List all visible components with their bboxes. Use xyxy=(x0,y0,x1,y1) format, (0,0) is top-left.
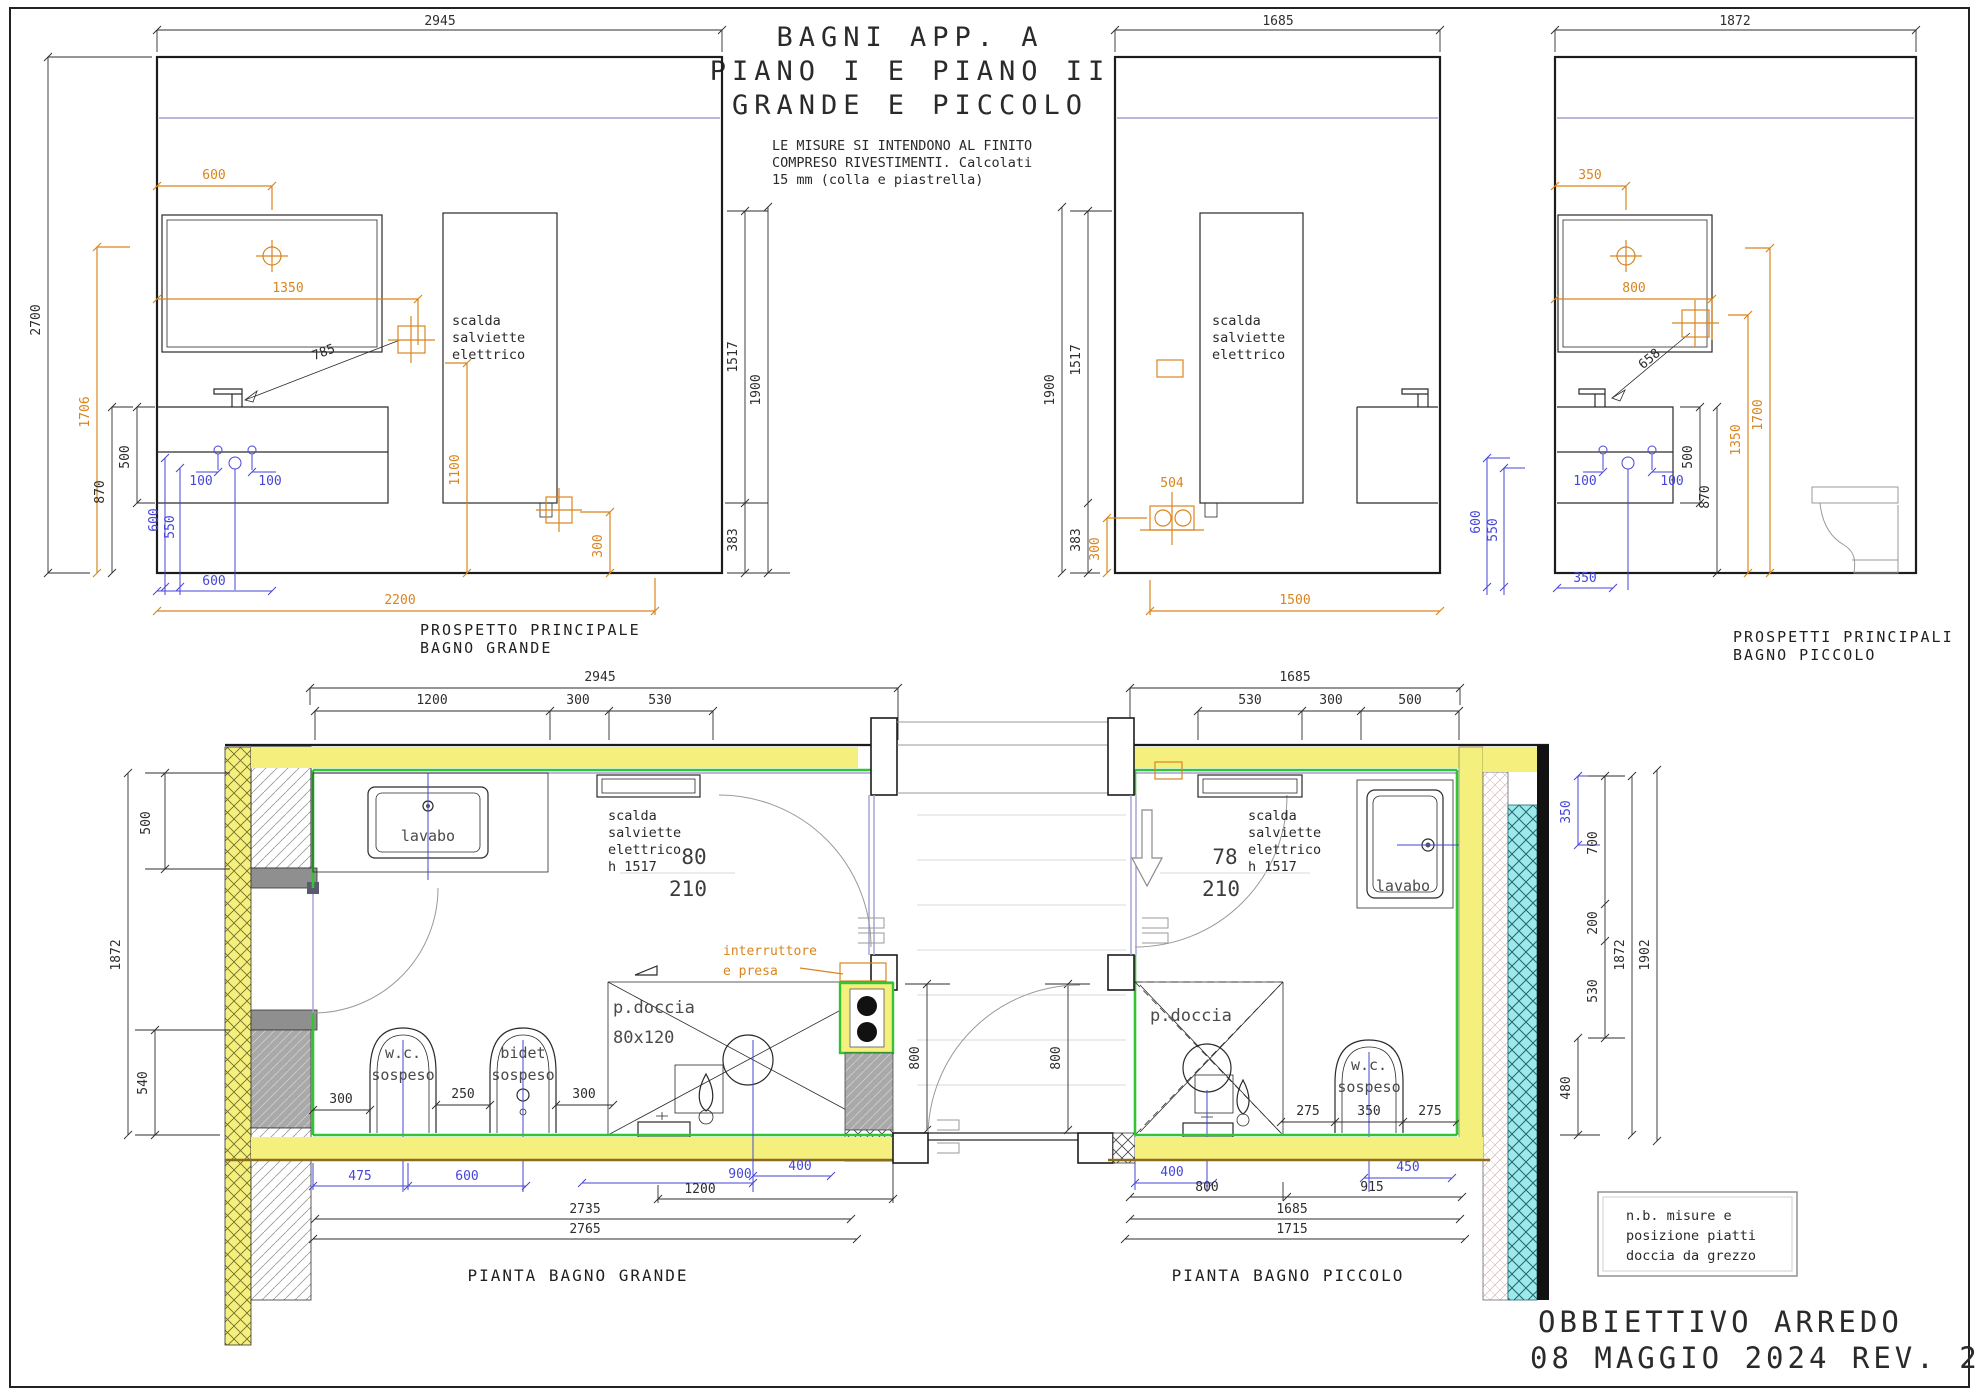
dim-800: 800 xyxy=(1622,281,1645,296)
faucet xyxy=(1579,389,1605,407)
mirror-light-point xyxy=(1610,240,1642,272)
double-socket-icon xyxy=(1140,492,1204,545)
dim-530: 530 xyxy=(1586,979,1601,1002)
wall-block xyxy=(845,1053,893,1130)
wall-outline xyxy=(157,57,722,573)
dim-300: 300 xyxy=(1319,693,1342,708)
wall-finish-band xyxy=(251,1137,893,1159)
dim-480: 480 xyxy=(1559,1076,1574,1099)
dim-1200: 1200 xyxy=(416,693,447,708)
towel-label-1: scalda xyxy=(1212,313,1261,329)
nb-line3: doccia da grezzo xyxy=(1626,1248,1756,1264)
wc-label-2: sospeso xyxy=(371,1066,434,1084)
dim-350: 350 xyxy=(1578,168,1601,183)
sheet-title-line2: PIANO I E PIANO II xyxy=(710,56,1111,87)
drawing-sheet: BAGNI APP. A PIANO I E PIANO II GRANDE E… xyxy=(0,0,1980,1394)
towel-label-1: scalda xyxy=(1248,808,1297,824)
elevation-piccolo-scalda: 1685 scalda salviette elettrico 504 300 … xyxy=(1043,14,1525,615)
dim-1900: 1900 xyxy=(1043,374,1058,405)
finish-note-line1: LE MISURE SI INTENDONO AL FINITO xyxy=(772,138,1032,154)
hallway: 800 800 xyxy=(893,722,1135,1163)
dim-275b: 275 xyxy=(1418,1104,1441,1119)
wc-label-2: sospeso xyxy=(1337,1078,1400,1096)
dim-height: 2700 xyxy=(29,304,44,335)
dim-600: 600 xyxy=(455,1169,478,1184)
towel-label-2: salviette xyxy=(452,330,525,346)
dim-1700: 1700 xyxy=(1751,399,1766,430)
dim-600v: 600 xyxy=(147,508,162,531)
external-wall-right xyxy=(1459,745,1549,1300)
electric-niche xyxy=(840,983,893,1053)
dim-500: 500 xyxy=(1681,445,1696,468)
door-height-label: 210 xyxy=(1202,877,1240,901)
dim-800: 800 xyxy=(1195,1180,1218,1195)
sheet-title-line3: GRANDE E PICCOLO xyxy=(732,90,1088,121)
dim-1517: 1517 xyxy=(1069,344,1084,375)
towel-label-2: salviette xyxy=(608,825,681,841)
bidet-label-1: bidet xyxy=(500,1044,545,1062)
dim-250: 250 xyxy=(451,1087,474,1102)
door-jamb xyxy=(1078,1133,1113,1163)
dim-550v: 550 xyxy=(163,515,178,538)
socket-icon xyxy=(536,488,582,532)
dim-width: 1685 xyxy=(1262,14,1293,29)
dim-550: 550 xyxy=(1486,518,1501,541)
nb-line1: n.b. misure e xyxy=(1626,1208,1732,1224)
dim-800a: 800 xyxy=(908,1046,923,1069)
door-jamb xyxy=(893,1133,928,1163)
towel-label-2: salviette xyxy=(1212,330,1285,346)
socket-icon xyxy=(388,316,435,363)
dim-1706: 1706 xyxy=(78,396,93,427)
dim-300: 300 xyxy=(1088,537,1103,560)
dim-900: 900 xyxy=(728,1167,751,1182)
elevation-piccolo-lavabo: 1872 350 800 658 100 100 350 500 870 135… xyxy=(1551,14,1954,664)
dim-1685: 1685 xyxy=(1279,670,1310,685)
dim-800b: 800 xyxy=(1049,1046,1064,1069)
dim-1500: 1500 xyxy=(1279,593,1310,608)
dim-500: 500 xyxy=(1398,693,1421,708)
dim-350: 350 xyxy=(1357,1104,1380,1119)
towel-warmer xyxy=(1198,775,1302,797)
dim-width: 1872 xyxy=(1719,14,1750,29)
sheet-title: BAGNI APP. A PIANO I E PIANO II GRANDE E… xyxy=(710,22,1111,188)
dim-870: 870 xyxy=(1698,485,1713,508)
note-box: n.b. misure e posizione piatti doccia da… xyxy=(1598,1192,1797,1276)
cad-drawing: BAGNI APP. A PIANO I E PIANO II GRANDE E… xyxy=(0,0,1980,1394)
dim-658: 658 xyxy=(1636,346,1664,373)
dim-100b: 100 xyxy=(258,474,281,489)
wc-label-1: w.c. xyxy=(1351,1056,1387,1074)
dim-600: 600 xyxy=(1469,510,1484,533)
dim-600b: 600 xyxy=(202,574,225,589)
dim-100a: 100 xyxy=(189,474,212,489)
dim-1517: 1517 xyxy=(726,341,741,372)
switch-icon xyxy=(1157,360,1183,377)
door-swing-arc xyxy=(313,888,438,1013)
pianta-bagno-grande: 2945 1200 300 530 lavabo scalda sal xyxy=(109,670,920,1345)
dim-mirror-600: 600 xyxy=(202,168,225,183)
titleblock-line2: 08 MAGGIO 2024 REV. 2 xyxy=(1530,1341,1980,1375)
towel-label-2: salviette xyxy=(1248,825,1321,841)
blue-dims xyxy=(309,1040,835,1192)
door-swing-arc xyxy=(719,795,871,947)
dim-400: 400 xyxy=(788,1159,811,1174)
dim-1200: 1200 xyxy=(684,1182,715,1197)
dim-915: 915 xyxy=(1360,1180,1383,1195)
dim-2200: 2200 xyxy=(384,593,415,608)
pdoccia-label: p.doccia xyxy=(1150,1006,1232,1026)
faucet xyxy=(214,389,242,407)
dim-mirror-1350: 1350 xyxy=(272,281,303,296)
towel-label-3: elettrico xyxy=(452,347,525,363)
wall-finish-band xyxy=(251,747,858,768)
finish-note-line2: COMPRESO RIVESTIMENTI. Calcolati xyxy=(772,155,1032,171)
lavabo-label: lavabo xyxy=(1376,877,1430,895)
dim-475: 475 xyxy=(348,1169,371,1184)
door-width-label: 78 xyxy=(1212,845,1237,869)
dim-1685b: 1685 xyxy=(1276,1202,1307,1217)
caption-line2: BAGNO GRANDE xyxy=(420,639,552,657)
dim-1350: 1350 xyxy=(1729,424,1744,455)
bidet-label-2: sospeso xyxy=(491,1066,554,1084)
dim-1100: 1100 xyxy=(448,454,463,485)
nb-line2: posizione piatti xyxy=(1626,1228,1756,1244)
lavabo-label: lavabo xyxy=(401,827,455,845)
pianta-bagno-piccolo: 1685 530 300 500 scalda salviette elettr… xyxy=(1108,670,1661,1300)
dim-300b: 300 xyxy=(572,1087,595,1102)
towel-label-3: elettrico xyxy=(608,842,681,858)
dim-1872: 1872 xyxy=(109,939,124,970)
dim-870: 870 xyxy=(93,480,108,503)
caption-line1: PROSPETTI PRINCIPALI xyxy=(1733,628,1954,646)
plumbing-dims xyxy=(1553,446,1674,592)
vanity xyxy=(1357,407,1438,503)
towel-label-3: elettrico xyxy=(1212,347,1285,363)
dim-350r: 350 xyxy=(1559,800,1574,823)
dim-200: 200 xyxy=(1586,911,1601,934)
dim-1902: 1902 xyxy=(1638,939,1653,970)
dim-300: 300 xyxy=(566,693,589,708)
wall-outline xyxy=(1115,57,1440,573)
dim-530: 530 xyxy=(1238,693,1261,708)
dim-300: 300 xyxy=(591,534,606,557)
mirror-light-point xyxy=(256,240,288,272)
caption-line1: PROSPETTO PRINCIPALE xyxy=(420,621,641,639)
dim-383: 383 xyxy=(726,528,741,551)
towel-warmer xyxy=(597,775,700,797)
faucet xyxy=(1402,389,1428,407)
dim-450: 450 xyxy=(1396,1160,1419,1175)
titleblock-line1: OBBIETTIVO ARREDO xyxy=(1538,1305,1903,1339)
switch-label-2: e presa xyxy=(723,964,778,979)
switch-label-1: interruttore xyxy=(723,944,817,959)
toilet xyxy=(1812,487,1898,573)
pdoccia-label: p.doccia xyxy=(613,998,695,1018)
dim-1872: 1872 xyxy=(1613,939,1628,970)
dim-383: 383 xyxy=(1069,528,1084,551)
caption: PIANTA BAGNO PICCOLO xyxy=(1172,1266,1405,1285)
dim-540: 540 xyxy=(136,1071,151,1094)
caption: PIANTA BAGNO GRANDE xyxy=(467,1266,688,1285)
dim-1900: 1900 xyxy=(749,374,764,405)
dim-504: 504 xyxy=(1160,476,1184,491)
towel-label-3: elettrico xyxy=(1248,842,1321,858)
sheet-title-line1: BAGNI APP. A xyxy=(776,22,1043,53)
dim-300a: 300 xyxy=(329,1092,352,1107)
dim-1715: 1715 xyxy=(1276,1222,1307,1237)
dim-500: 500 xyxy=(139,811,154,834)
dim-530: 530 xyxy=(648,693,671,708)
title-block: OBBIETTIVO ARREDO 08 MAGGIO 2024 REV. 2 xyxy=(1530,1305,1980,1375)
elevation-bagno-grande: 2945 2700 600 1350 1706 scalda salviette… xyxy=(29,14,790,657)
towel-label-1: scalda xyxy=(452,313,501,329)
finish-note-line3: 15 mm (colla e piastrella) xyxy=(772,172,983,188)
dim-width: 2945 xyxy=(424,14,455,29)
dim-500: 500 xyxy=(118,445,133,468)
dim-2735: 2735 xyxy=(569,1202,600,1217)
caption-line2: BAGNO PICCOLO xyxy=(1733,646,1876,664)
dim-785: 785 xyxy=(310,342,337,364)
dim-700: 700 xyxy=(1586,831,1601,854)
dim-2945: 2945 xyxy=(584,670,615,685)
external-wall-left xyxy=(225,747,317,1345)
pdoccia-size-label: 80x120 xyxy=(613,1028,674,1048)
dim-275a: 275 xyxy=(1296,1104,1319,1119)
door-height-label: 210 xyxy=(669,877,707,901)
dim-350b: 350 xyxy=(1573,571,1596,586)
towel-label-1: scalda xyxy=(608,808,657,824)
dim-100b: 100 xyxy=(1660,474,1683,489)
dim-400: 400 xyxy=(1160,1165,1183,1180)
wall-finish-band xyxy=(1135,1137,1483,1159)
door-width-label: 80 xyxy=(681,845,706,869)
wc-label-1: w.c. xyxy=(385,1044,421,1062)
dim-2765: 2765 xyxy=(569,1222,600,1237)
dim-100a: 100 xyxy=(1573,474,1596,489)
